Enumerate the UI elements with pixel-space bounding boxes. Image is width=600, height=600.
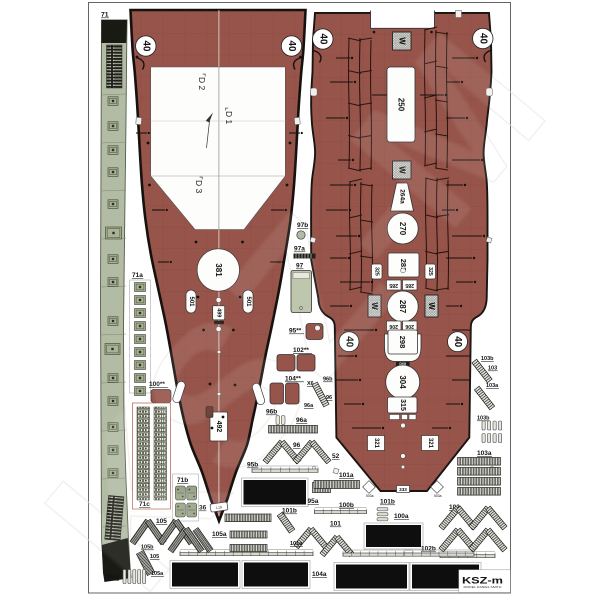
svg-text:⌜D 3: ⌜D 3 bbox=[194, 176, 204, 193]
svg-text:103a: 103a bbox=[477, 450, 492, 457]
svg-text:104a: 104a bbox=[312, 571, 327, 578]
svg-text:97a: 97a bbox=[294, 246, 305, 253]
svg-text:100b: 100b bbox=[339, 502, 354, 509]
svg-text:71a: 71a bbox=[132, 272, 143, 279]
svg-text:100a: 100a bbox=[394, 513, 409, 520]
svg-text:105b: 105b bbox=[104, 574, 119, 581]
svg-text:101b: 101b bbox=[282, 508, 297, 515]
svg-text:102**: 102** bbox=[293, 347, 309, 354]
svg-text:503a: 503a bbox=[434, 494, 442, 498]
svg-text:⌞D 1: ⌞D 1 bbox=[224, 107, 234, 124]
svg-text:105a: 105a bbox=[212, 531, 227, 538]
svg-text:321: 321 bbox=[427, 438, 433, 449]
svg-text:40: 40 bbox=[140, 41, 151, 52]
svg-text:304: 304 bbox=[398, 375, 407, 389]
svg-text:40: 40 bbox=[452, 336, 463, 347]
svg-text:102b: 102b bbox=[421, 546, 436, 553]
svg-text:97b: 97b bbox=[297, 222, 308, 229]
svg-text:95b: 95b bbox=[247, 462, 258, 469]
svg-text:315: 315 bbox=[399, 399, 406, 411]
svg-text:321: 321 bbox=[373, 438, 379, 449]
svg-text:KSZ-m: KSZ-m bbox=[462, 576, 503, 587]
svg-text:96: 96 bbox=[293, 442, 301, 449]
svg-text:333: 333 bbox=[399, 487, 407, 492]
svg-text:105: 105 bbox=[156, 518, 167, 525]
svg-text:96a: 96a bbox=[296, 417, 307, 424]
svg-text:MODEL DANIEL SMITH: MODEL DANIEL SMITH bbox=[464, 585, 502, 589]
svg-text:40: 40 bbox=[317, 34, 328, 45]
svg-text:95**: 95** bbox=[289, 328, 302, 335]
svg-text:101: 101 bbox=[330, 521, 341, 528]
svg-text:40: 40 bbox=[477, 33, 488, 44]
svg-text:97: 97 bbox=[296, 263, 304, 270]
svg-text:95a: 95a bbox=[308, 498, 319, 505]
svg-text:⌜D 2: ⌜D 2 bbox=[197, 73, 207, 90]
svg-text:101b: 101b bbox=[380, 499, 395, 506]
svg-text:52: 52 bbox=[332, 453, 340, 460]
svg-text:71: 71 bbox=[101, 12, 109, 19]
svg-text:104**: 104** bbox=[285, 376, 301, 383]
svg-text:101a: 101a bbox=[339, 472, 354, 479]
svg-text:503a: 503a bbox=[366, 494, 374, 498]
svg-text:40: 40 bbox=[286, 41, 297, 52]
svg-text:96b: 96b bbox=[266, 409, 277, 416]
